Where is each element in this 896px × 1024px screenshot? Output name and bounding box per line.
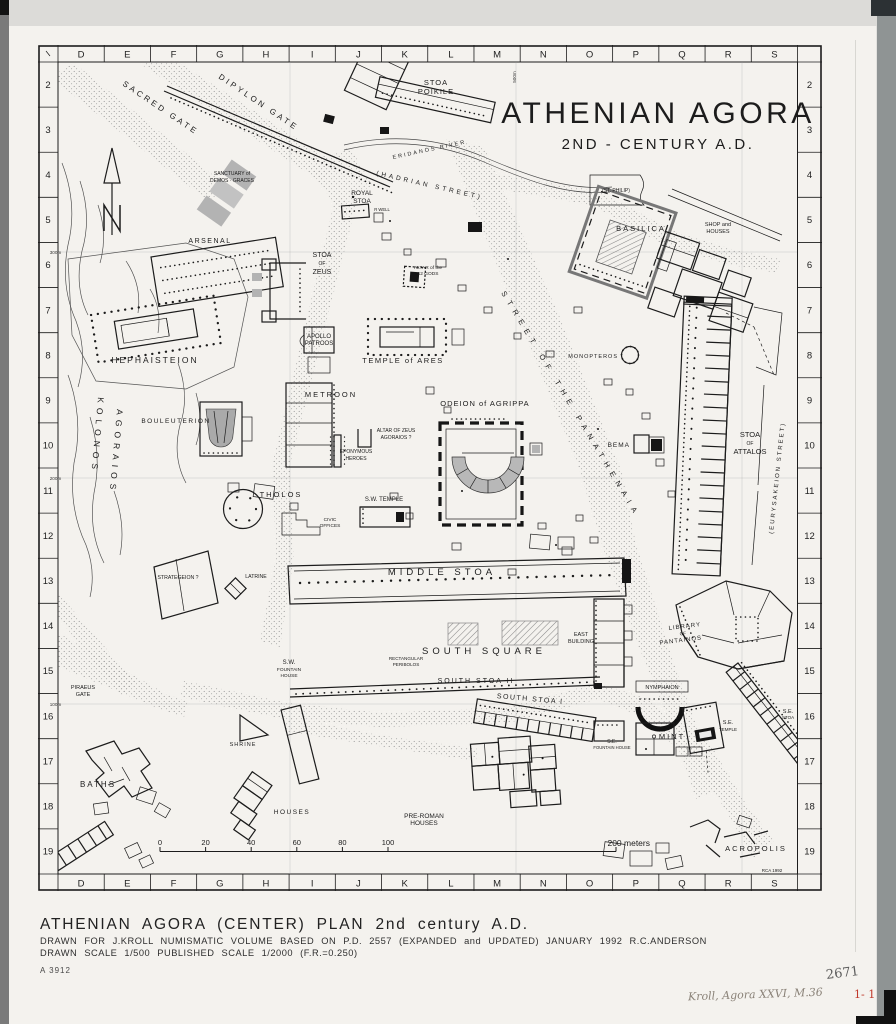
- map-label: POIKILE: [418, 87, 454, 96]
- scale-tick-label: 80: [338, 838, 346, 847]
- map-label: THOLOS: [260, 490, 303, 499]
- grid-number: 12: [804, 531, 815, 542]
- grid-number: 3: [45, 125, 50, 136]
- map-label: HOUSES: [274, 809, 310, 816]
- map-label: MIDDLE STOA: [388, 567, 496, 578]
- map-label: METROON: [305, 390, 357, 399]
- grid-number: 13: [43, 576, 54, 587]
- map-label: MONOPTEROS: [568, 354, 618, 360]
- grid-number: 5: [807, 215, 812, 226]
- caption-scale: DRAWN SCALE 1/500 PUBLISHED SCALE 1/2000…: [40, 948, 760, 958]
- grid-letter: G: [216, 879, 223, 890]
- distance-tick: 300m: [50, 250, 62, 255]
- map-label: EPONYMOUS: [340, 449, 373, 455]
- grid-letter: K: [401, 879, 408, 890]
- grid-letter: O: [586, 879, 593, 890]
- grid-number: 16: [804, 711, 815, 722]
- grid-number: 7: [45, 305, 50, 316]
- grid-letter: I: [311, 49, 314, 60]
- red-mark: 1- 1: [854, 988, 875, 1001]
- map-label: OF: [679, 631, 686, 637]
- map-label: R WELL: [374, 207, 390, 212]
- map-label: PATROOS: [305, 341, 333, 347]
- map-label: BOULEUTERION: [141, 418, 210, 425]
- distance-tick: 500m: [512, 71, 517, 83]
- map-label: STOA: [782, 715, 794, 720]
- caption-credit: DRAWN FOR J.KROLL NUMISMATIC VOLUME BASE…: [40, 936, 760, 946]
- map-label: HEROES: [345, 456, 367, 462]
- map-label: STRATEGEION ?: [157, 575, 198, 581]
- map-label: HOUSE: [280, 673, 297, 679]
- grid-letter: D: [78, 49, 85, 60]
- map-label: APOLLO: [307, 334, 331, 340]
- grid-number: 16: [43, 711, 54, 722]
- map-label: SANCTUARY of: [214, 171, 251, 177]
- caption-block: ATHENIAN AGORA (CENTER) PLAN 2nd century…: [40, 916, 760, 958]
- map-label: GATE: [76, 692, 91, 698]
- scan-top-strip: [9, 0, 896, 26]
- grid-letter: P: [633, 49, 639, 60]
- map-label: HEPHAISTEION: [111, 355, 198, 365]
- map-label: ZEUS: [313, 269, 332, 276]
- map-label: SHOP and: [705, 222, 731, 228]
- map-label: ODEION of AGRIPPA: [440, 399, 529, 408]
- scale-tick-label: 60: [293, 838, 301, 847]
- grid-number: 6: [807, 260, 812, 271]
- map-label: ROYAL: [351, 190, 373, 197]
- map-label: KOLONOS: [89, 397, 106, 475]
- grid-number: 15: [43, 666, 54, 677]
- grid-number: 8: [45, 350, 50, 361]
- grid-number: 18: [804, 802, 815, 813]
- map-title: ATHENIAN AGORA: [501, 97, 815, 130]
- map-label: 200 meters: [607, 838, 650, 848]
- map-label: BUILDING: [568, 639, 594, 645]
- map-label: PIRAEUS: [71, 685, 95, 691]
- map-label: AGORAIOS ?: [381, 435, 412, 441]
- grid-number: 12: [43, 531, 54, 542]
- grid-letter: R: [725, 49, 732, 60]
- map-label: (ST. PHILIP): [602, 188, 630, 194]
- grid-number: 17: [43, 756, 54, 767]
- paper-crease: [855, 40, 856, 952]
- scan-bottom-corner: [856, 1016, 896, 1024]
- map-label: OF: [319, 261, 326, 267]
- map-label: AGORAIOS: [108, 409, 125, 495]
- scale-bar: 020406080100: [158, 838, 616, 852]
- distance-tick: 200m: [50, 476, 62, 481]
- scale-tick-label: 100: [382, 838, 395, 847]
- map-label: STOA: [740, 430, 760, 439]
- map-label: SHRINE: [230, 742, 257, 748]
- scan-right-top-corner: [871, 0, 896, 16]
- scale-tick-label: 40: [247, 838, 255, 847]
- map-label: SOUTH STOA II: [438, 678, 515, 685]
- grid-number: 6: [45, 260, 50, 271]
- grid-number: 17: [804, 756, 815, 767]
- map-label: BATHS: [80, 780, 116, 789]
- map-label: MINT: [659, 732, 685, 741]
- grid-number: 7: [807, 305, 812, 316]
- grid-number: 14: [804, 621, 815, 632]
- grid-letter: Q: [678, 879, 685, 890]
- map-label: S.W.: [283, 660, 296, 666]
- grid-number: 3: [807, 125, 812, 136]
- grid-number: 10: [804, 441, 815, 452]
- map-label: BEMA: [608, 442, 630, 449]
- map-label: SOUTH SQUARE: [422, 646, 546, 657]
- map-label: RCA 1992: [762, 868, 783, 873]
- map-label: STOA: [353, 198, 371, 205]
- negative-number: A 3912: [40, 966, 71, 975]
- map-label: 12 GODS: [418, 271, 439, 277]
- map-label: RECTANGULAR: [389, 656, 424, 661]
- scan-left-corner: [0, 0, 9, 15]
- grid-letter: I: [311, 879, 314, 890]
- grid-letter: M: [493, 49, 501, 60]
- map-label: S.E.: [723, 720, 734, 726]
- grid-letter: H: [263, 879, 270, 890]
- map-label: HOUSES: [706, 229, 730, 235]
- grid-letter: E: [124, 49, 130, 60]
- map-label: EAST: [574, 632, 589, 638]
- agora-map: 020406080100 ATHENIAN AGORA 2ND - CENTUR…: [38, 45, 822, 891]
- map-label: BASILICA: [616, 224, 666, 233]
- map-label: DEMOS · GRACES: [210, 178, 255, 184]
- grid-letter: F: [171, 49, 177, 60]
- grid-letter: R: [725, 879, 732, 890]
- map-label: LATRINE: [245, 574, 267, 580]
- grid-number: 5: [45, 215, 50, 226]
- grid-number: 8: [807, 350, 812, 361]
- grid-number: 10: [43, 441, 54, 452]
- grid-letter: O: [586, 49, 593, 60]
- grid-letter: N: [540, 49, 547, 60]
- map-label: ALTAR OF ZEUS: [377, 428, 416, 434]
- grid-number: 11: [43, 486, 53, 497]
- grid-letter: M: [493, 879, 501, 890]
- grid-number: 9: [807, 396, 812, 407]
- map-label: S.W. TEMPLE: [365, 497, 403, 503]
- map-label: CIVIC: [324, 517, 337, 523]
- grid-letter: F: [171, 879, 177, 890]
- map-label: TEMPLE: [719, 727, 737, 732]
- scan-right-edge: [877, 16, 896, 1024]
- grid-number: 19: [43, 847, 54, 858]
- map-label: STOA: [313, 252, 332, 259]
- grid-number: 18: [43, 802, 54, 813]
- grid-letter: J: [356, 49, 361, 60]
- grid-number: 4: [807, 170, 812, 181]
- scan-left-edge: [0, 0, 9, 1024]
- scanned-plan-page: 020406080100 ATHENIAN AGORA 2ND - CENTUR…: [0, 0, 896, 1024]
- distance-tick: 100m: [50, 702, 62, 707]
- map-label: STOA: [424, 78, 448, 87]
- grid-letter: K: [401, 49, 408, 60]
- map-label: PANTAINOS: [659, 635, 702, 646]
- grid-number: 13: [804, 576, 815, 587]
- grid-number: 14: [43, 621, 54, 632]
- grid-letter: L: [448, 879, 453, 890]
- map-subtitle: 2ND - CENTURY A.D.: [562, 136, 755, 153]
- caption-title: ATHENIAN AGORA (CENTER) PLAN 2nd century…: [40, 916, 760, 934]
- scale-tick-label: 0: [158, 838, 162, 847]
- map-label: ATTALOS: [733, 447, 766, 456]
- map-label: TEMPLE of ARES: [362, 356, 443, 365]
- grid-letter: H: [263, 49, 270, 60]
- grid-letter: E: [124, 879, 130, 890]
- north-arrow-icon: [104, 148, 120, 235]
- map-label: NYMPHAION: [645, 685, 678, 691]
- map-label: ALTAR of the: [414, 265, 442, 271]
- grid-letter: L: [448, 49, 453, 60]
- grid-number: 9: [45, 396, 50, 407]
- grid-number: 19: [804, 847, 815, 858]
- grid-number: 4: [45, 170, 50, 181]
- map-label: PRE-ROMAN: [404, 813, 444, 820]
- grid-number: 2: [807, 80, 812, 91]
- scale-tick-label: 20: [201, 838, 209, 847]
- map-label: FOUNTAIN HOUSE: [593, 745, 630, 750]
- map-label: OFFICES: [320, 523, 341, 529]
- grid-letter: S: [771, 49, 777, 60]
- grid-letter: S: [771, 879, 777, 890]
- map-label: ARSENAL: [188, 238, 231, 245]
- map-label: HOUSES: [410, 820, 438, 827]
- map-label: PERIBOLOS: [393, 662, 420, 667]
- grid-number: 2: [45, 80, 50, 91]
- grid-letter: G: [216, 49, 223, 60]
- grid-letter: Q: [678, 49, 685, 60]
- map-label: FOUNTAIN: [277, 667, 302, 673]
- map-label: ACROPOLIS: [725, 844, 787, 853]
- grid-number: 11: [805, 486, 815, 497]
- grid-number: 15: [804, 666, 815, 677]
- grid-letter: J: [356, 879, 361, 890]
- grid-letter: D: [78, 879, 85, 890]
- grid-letter: N: [540, 879, 547, 890]
- grid-letter: P: [633, 879, 639, 890]
